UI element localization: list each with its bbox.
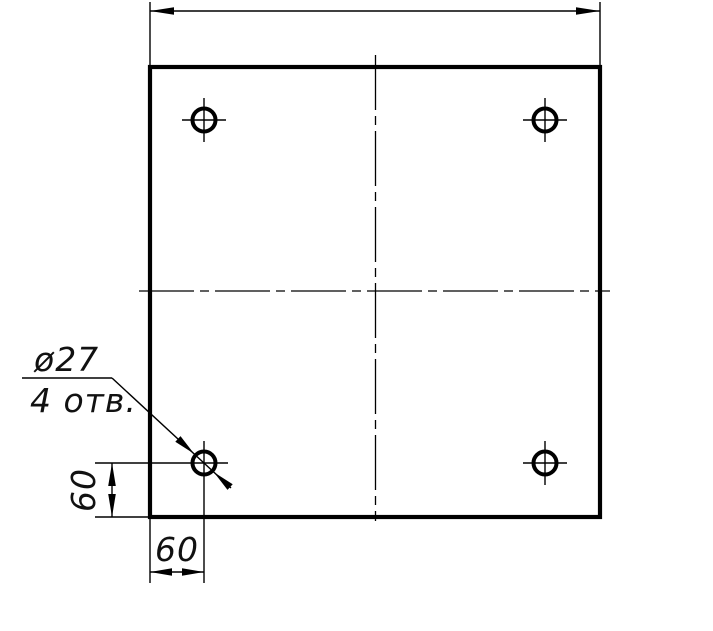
hole-diameter-callout: ø27 4 отв.: [22, 340, 233, 490]
vertical-offset-dimension: 60: [64, 463, 148, 517]
callout-holes-count-label: 4 отв.: [30, 381, 137, 420]
engineering-drawing-canvas: 60 60 ø27 4 отв.: [0, 0, 713, 631]
dimension-value-vertical: 60: [64, 468, 103, 512]
hole-top-right: [523, 98, 567, 142]
arrowhead-right: [576, 7, 600, 15]
arrowhead-left: [150, 7, 174, 15]
leader-arrowhead-upper: [175, 436, 194, 454]
arrowhead-down: [108, 494, 116, 517]
arrowhead-right: [182, 568, 204, 575]
arrowhead-up: [108, 463, 116, 486]
dimension-value-horizontal: 60: [155, 530, 199, 569]
horizontal-offset-dimension: 60: [150, 519, 204, 583]
arrowhead-left: [150, 568, 172, 575]
drawing-sheet: 60 60 ø27 4 отв.: [0, 0, 713, 631]
hole-bottom-right: [523, 441, 567, 485]
hole-top-left: [182, 98, 226, 142]
leader-arrowhead-lower: [214, 472, 233, 490]
callout-diameter-label: ø27: [33, 340, 99, 379]
